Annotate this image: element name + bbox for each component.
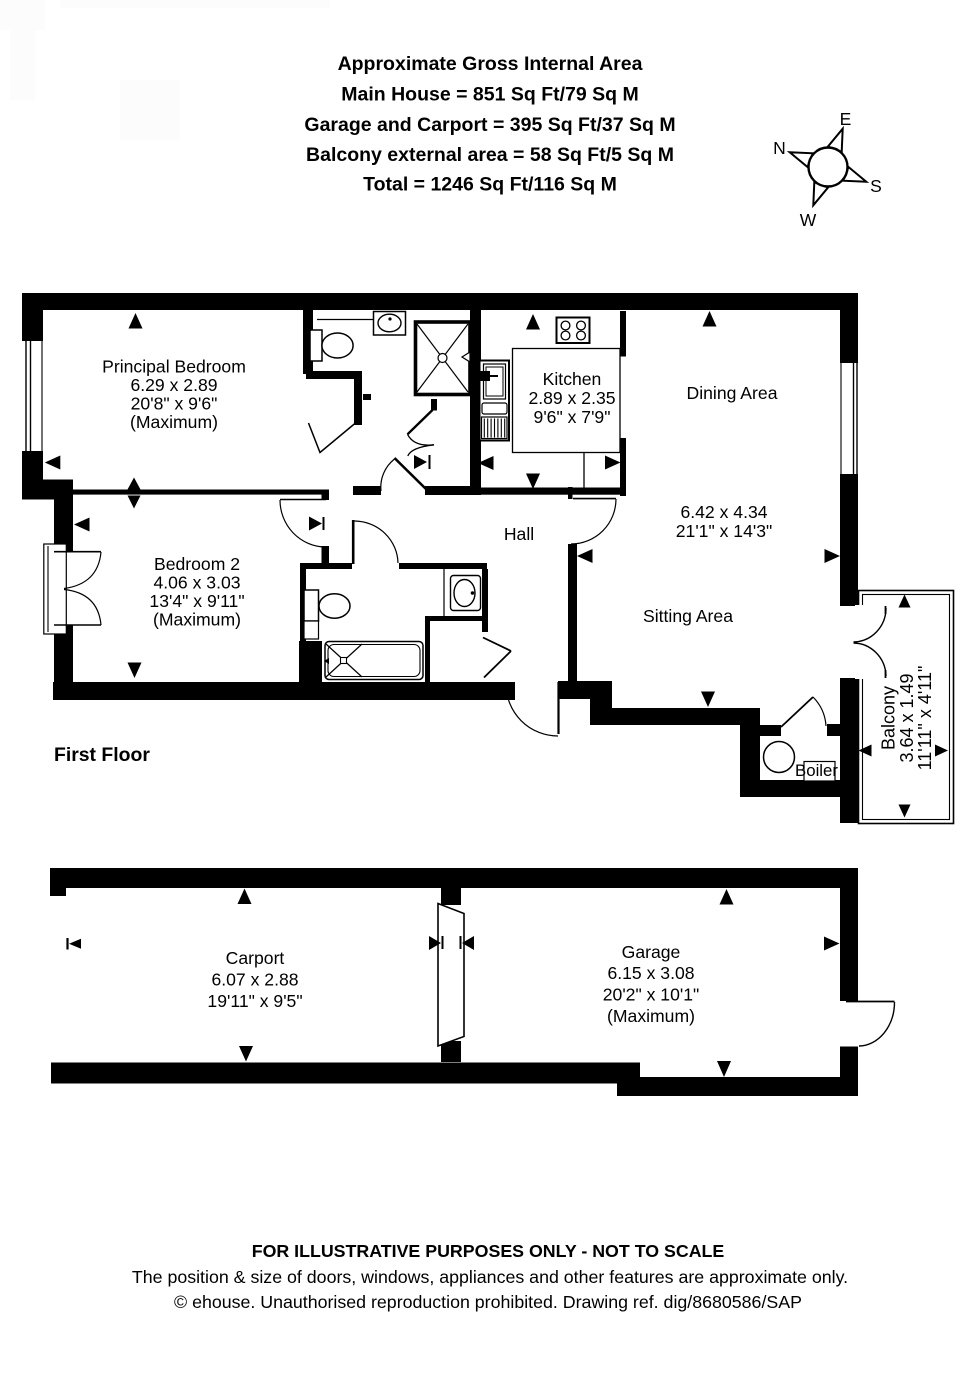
svg-text:Balcony: Balcony bbox=[879, 686, 899, 750]
svg-text:Sitting Area: Sitting Area bbox=[643, 606, 733, 626]
svg-text:6.07 x 2.88: 6.07 x 2.88 bbox=[211, 970, 298, 990]
svg-text:Kitchen: Kitchen bbox=[543, 369, 602, 389]
svg-text:Approximate Gross Internal Are: Approximate Gross Internal Area bbox=[338, 53, 643, 75]
svg-text:6.15 x 3.08: 6.15 x 3.08 bbox=[607, 963, 694, 983]
svg-text:Balcony external area = 58 Sq: Balcony external area = 58 Sq Ft/5 Sq M bbox=[306, 144, 674, 166]
svg-text:2.89 x 2.35: 2.89 x 2.35 bbox=[528, 388, 615, 408]
svg-text:3.64 x 1.49: 3.64 x 1.49 bbox=[897, 673, 917, 762]
svg-text:W: W bbox=[800, 210, 817, 230]
svg-text:6.29 x 2.89: 6.29 x 2.89 bbox=[130, 375, 217, 395]
svg-text:N: N bbox=[773, 138, 786, 158]
svg-text:6.42 x 4.34: 6.42 x 4.34 bbox=[680, 502, 767, 522]
svg-text:Dining Area: Dining Area bbox=[687, 383, 778, 403]
svg-text:(Maximum): (Maximum) bbox=[607, 1006, 695, 1026]
svg-text:First Floor: First Floor bbox=[54, 744, 150, 766]
svg-text:Principal Bedroom: Principal Bedroom bbox=[102, 357, 246, 377]
svg-text:Carport: Carport bbox=[226, 948, 285, 968]
svg-text:Hall: Hall bbox=[504, 524, 534, 544]
svg-text:9'6" x 7'9": 9'6" x 7'9" bbox=[534, 407, 611, 427]
svg-text:FOR ILLUSTRATIVE PURPOSES ONLY: FOR ILLUSTRATIVE PURPOSES ONLY - NOT TO … bbox=[252, 1241, 725, 1261]
svg-text:13'4" x 9'11": 13'4" x 9'11" bbox=[149, 591, 244, 611]
svg-text:E: E bbox=[840, 109, 852, 129]
svg-text:11'11" x 4'11": 11'11" x 4'11" bbox=[915, 666, 935, 771]
svg-text:4.06 x 3.03: 4.06 x 3.03 bbox=[153, 573, 240, 593]
svg-text:Boiler: Boiler bbox=[795, 761, 838, 780]
svg-text:21'1" x 14'3": 21'1" x 14'3" bbox=[676, 521, 773, 541]
svg-text:Main House = 851 Sq Ft/79 Sq M: Main House = 851 Sq Ft/79 Sq M bbox=[341, 84, 638, 106]
svg-text:20'2" x 10'1": 20'2" x 10'1" bbox=[603, 985, 700, 1005]
svg-text:Garage: Garage bbox=[622, 942, 681, 962]
svg-text:(Maximum): (Maximum) bbox=[153, 610, 241, 630]
svg-text:19'11" x 9'5": 19'11" x 9'5" bbox=[207, 991, 302, 1011]
svg-text:(Maximum): (Maximum) bbox=[130, 412, 218, 432]
svg-text:Bedroom 2: Bedroom 2 bbox=[154, 554, 240, 574]
svg-text:© ehouse. Unauthorised reprodu: © ehouse. Unauthorised reproduction proh… bbox=[174, 1292, 802, 1312]
svg-text:Total = 1246 Sq Ft/116 Sq M: Total = 1246 Sq Ft/116 Sq M bbox=[363, 174, 617, 196]
svg-text:The position & size of doors,: The position & size of doors, windows, a… bbox=[132, 1267, 848, 1287]
svg-text:20'8" x 9'6": 20'8" x 9'6" bbox=[131, 394, 218, 414]
svg-text:S: S bbox=[870, 176, 882, 196]
svg-text:Garage and Carport = 395 Sq Ft: Garage and Carport = 395 Sq Ft/37 Sq M bbox=[304, 114, 675, 136]
